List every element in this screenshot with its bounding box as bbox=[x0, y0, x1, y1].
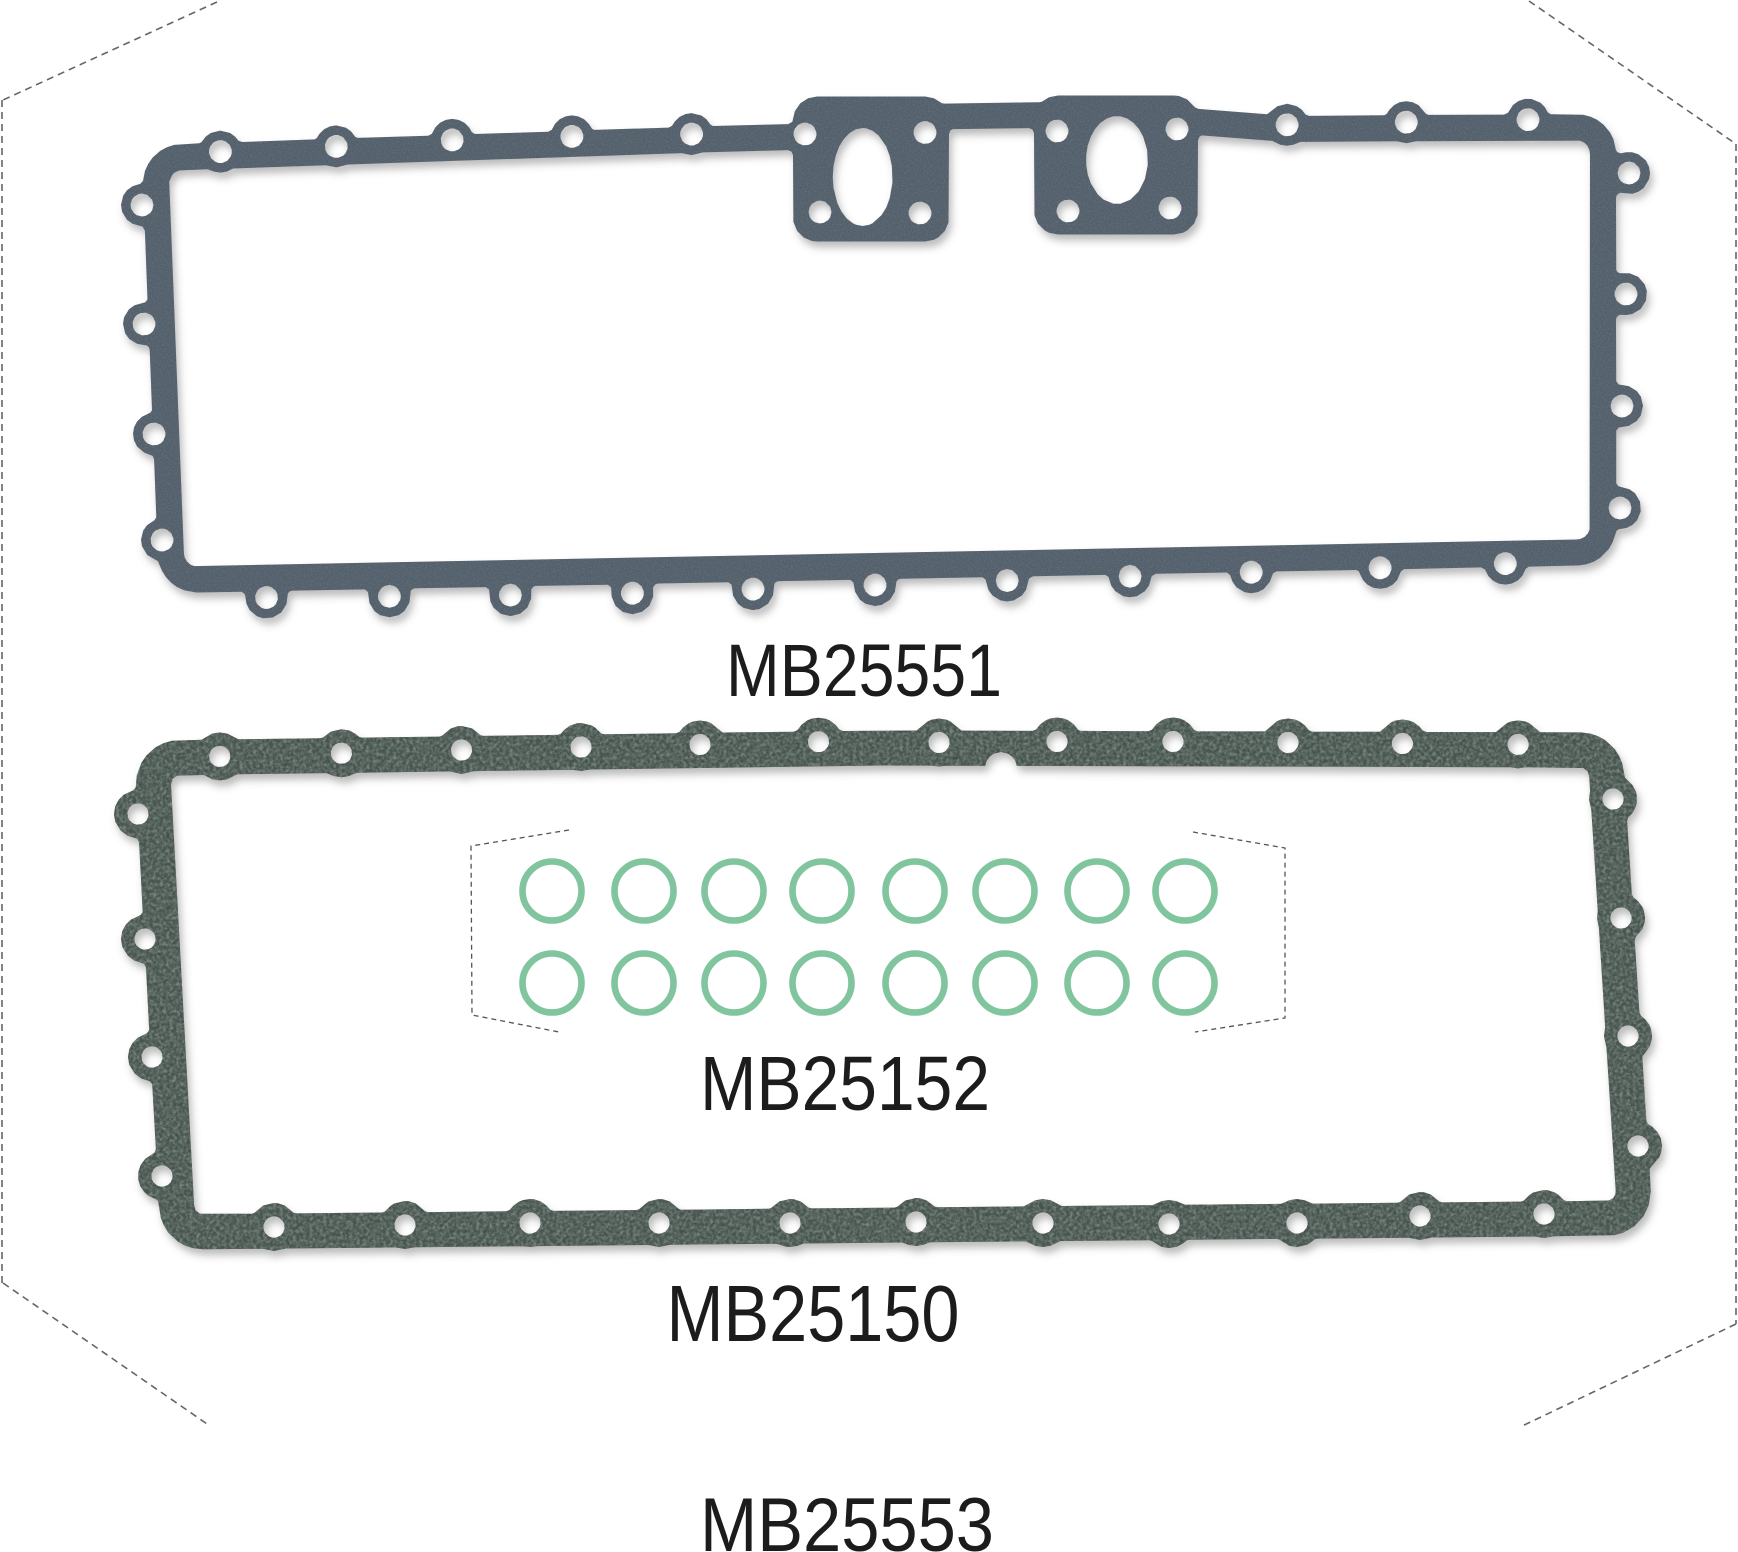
svg-text:MB25551: MB25551 bbox=[726, 629, 1002, 712]
svg-text:MB25152: MB25152 bbox=[700, 1041, 990, 1127]
svg-text:MB25553: MB25553 bbox=[700, 1483, 994, 1552]
svg-text:MB25150: MB25150 bbox=[667, 1269, 960, 1358]
